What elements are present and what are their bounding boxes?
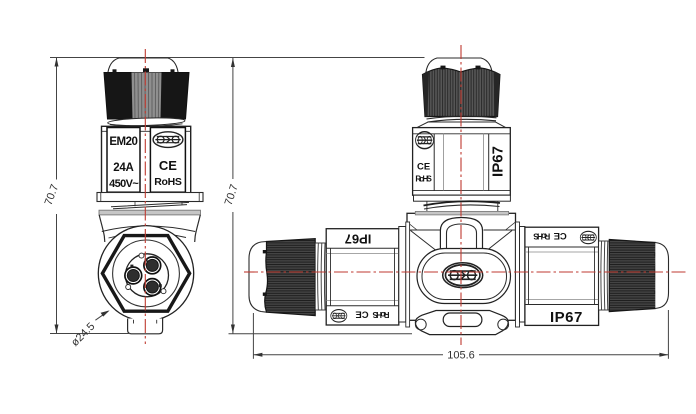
svg-text:CE: CE [554, 230, 567, 241]
svg-text:RoHS: RoHS [533, 232, 551, 241]
svg-text:EM20: EM20 [109, 136, 137, 148]
svg-text:105.6: 105.6 [447, 350, 475, 362]
svg-text:RoHS: RoHS [372, 310, 390, 319]
svg-text:CE: CE [159, 158, 177, 173]
svg-text:IP67: IP67 [345, 232, 372, 247]
svg-text:IP67: IP67 [490, 146, 507, 177]
svg-text:CE: CE [355, 309, 368, 320]
svg-text:24A: 24A [113, 162, 133, 174]
svg-text:CE: CE [417, 162, 430, 173]
svg-text:RoHS: RoHS [415, 175, 432, 184]
svg-text:IP67: IP67 [550, 309, 583, 326]
svg-text:450V~: 450V~ [109, 178, 139, 190]
svg-text:RoHS: RoHS [154, 176, 182, 188]
